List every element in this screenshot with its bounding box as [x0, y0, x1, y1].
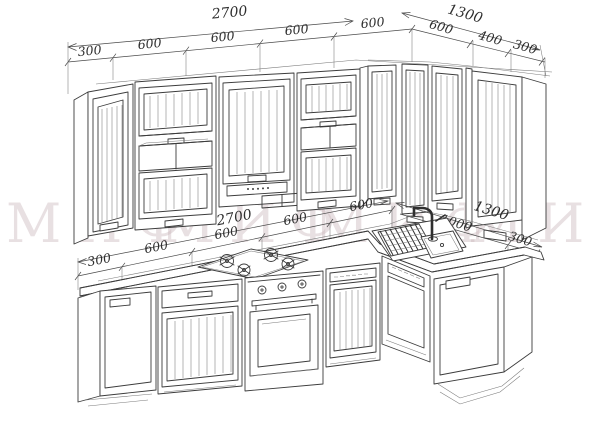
handle	[437, 203, 453, 210]
dim-upper-seg: 300	[77, 42, 102, 59]
handle	[407, 216, 423, 223]
wall-cabinet-2	[219, 73, 302, 208]
kitchen-drawing-page: МИФ МИФ МИФ МИФ 2700 300 600 600 600 600…	[0, 0, 600, 424]
kitchen-drawing: МИФ МИФ МИФ МИФ 2700 300 600 600 600 600…	[0, 0, 600, 424]
wall-cabinet-3	[297, 69, 360, 211]
dim-base-seg: 300	[86, 250, 112, 269]
oven	[245, 271, 323, 391]
handle	[248, 175, 266, 182]
dim-upper-left-total: 2700	[210, 3, 248, 22]
base-cabinet-end-right	[434, 257, 532, 404]
base-cabinet-drawer	[158, 279, 242, 394]
dim-upper-seg: 600	[284, 21, 309, 38]
base-cabinet-slatted	[326, 263, 380, 367]
wall-cabinet-end-left	[74, 84, 133, 244]
dim-upper-seg: 600	[360, 14, 385, 31]
dim-upper-seg: 400	[476, 27, 504, 48]
dim-upper-seg: 600	[210, 28, 235, 45]
wall-cabinet-1	[135, 76, 216, 230]
handle	[110, 298, 130, 307]
oven-window	[258, 314, 310, 367]
dim-upper-seg: 600	[137, 35, 162, 52]
base-cabinet-corner-sink	[382, 256, 430, 362]
wall-cabinet-right-1	[432, 66, 462, 210]
base-cabinet-end-left	[78, 286, 156, 406]
dim-upper-seg: 300	[512, 36, 539, 57]
